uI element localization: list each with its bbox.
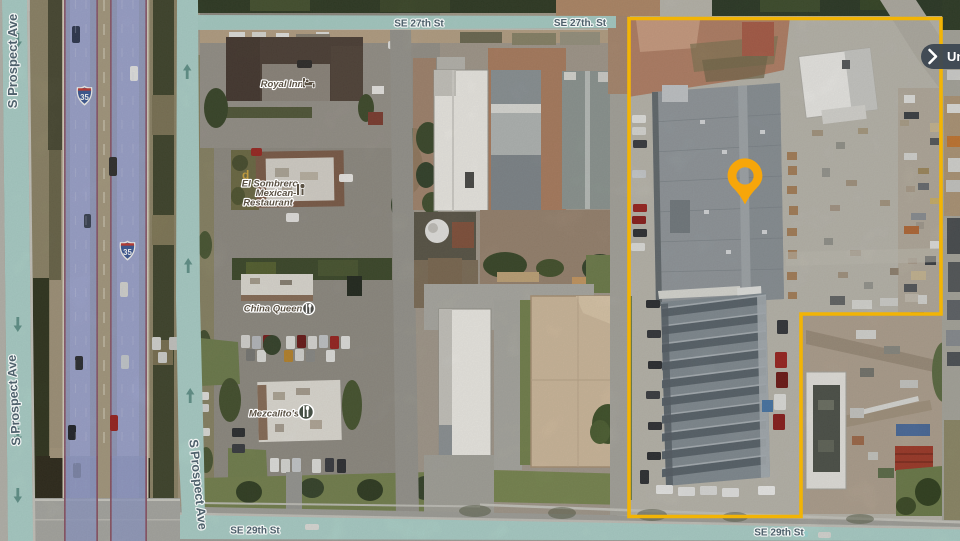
svg-text:Restaurant: Restaurant (243, 198, 293, 209)
svg-text:China Queen: China Queen (244, 304, 303, 315)
svg-text:SE 29th St: SE 29th St (754, 528, 804, 539)
svg-text:SE 27th St: SE 27th St (394, 19, 444, 30)
svg-text:SE 27th. St: SE 27th. St (554, 18, 607, 29)
svg-text:Mezcalito's: Mezcalito's (249, 409, 299, 420)
svg-text:Un: Un (947, 49, 960, 64)
svg-text:SE 29th St: SE 29th St (230, 526, 280, 537)
svg-text:S Prospect Ave: S Prospect Ave (5, 14, 20, 108)
svg-text:Royal Inn: Royal Inn (261, 79, 304, 90)
